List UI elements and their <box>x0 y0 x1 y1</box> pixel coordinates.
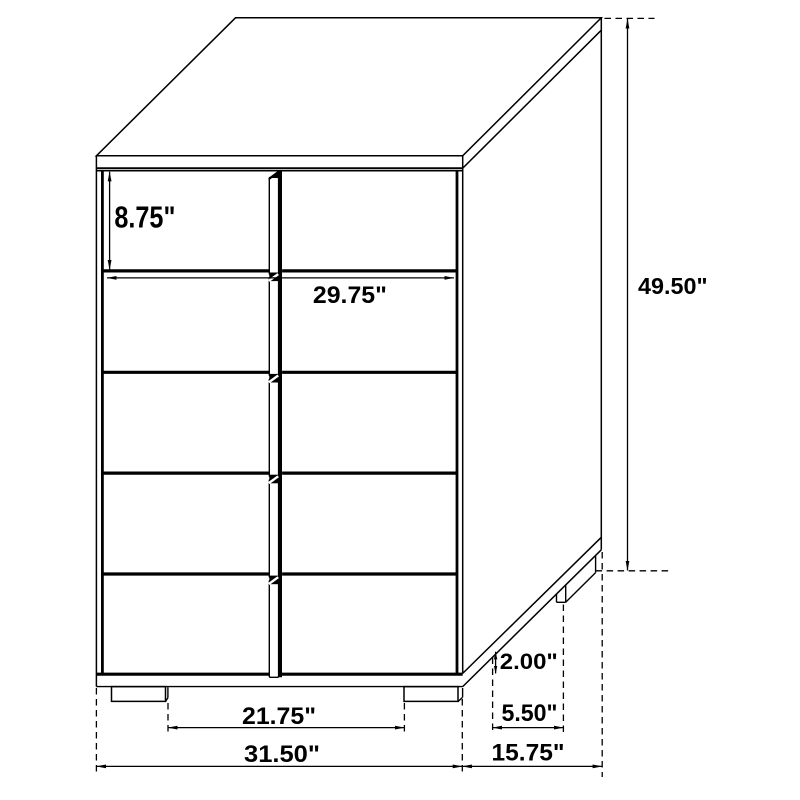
svg-text:2.00": 2.00" <box>500 649 558 674</box>
svg-text:8.75": 8.75" <box>114 201 175 235</box>
svg-text:5.50": 5.50" <box>502 700 558 727</box>
svg-text:31.50": 31.50" <box>244 741 320 768</box>
svg-text:29.75": 29.75" <box>313 282 387 309</box>
svg-text:21.75": 21.75" <box>242 703 316 730</box>
svg-text:49.50": 49.50" <box>638 273 708 299</box>
svg-text:15.75": 15.75" <box>492 739 565 766</box>
